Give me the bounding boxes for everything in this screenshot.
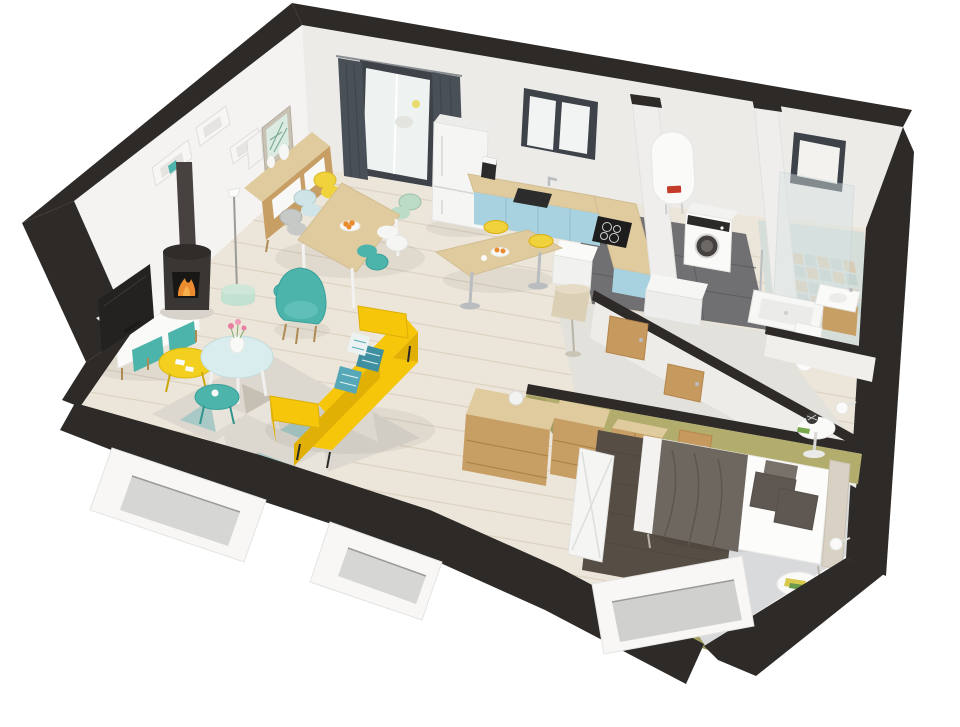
mug-2 xyxy=(212,390,219,397)
door-laundry xyxy=(606,316,648,360)
floor-plan-svg xyxy=(0,0,960,727)
armchair-shadow xyxy=(274,321,330,339)
bar-stool-1 xyxy=(484,221,508,234)
vase-2 xyxy=(267,156,275,168)
kettle xyxy=(481,156,497,180)
washing-machine xyxy=(684,203,738,272)
pillow-2 xyxy=(774,488,818,530)
balcony-chair-hint xyxy=(412,100,420,108)
shower-glass-panel xyxy=(774,172,854,308)
sphere-decor xyxy=(509,391,523,405)
console-desk xyxy=(462,388,560,486)
mug xyxy=(481,255,487,261)
floor-plan-render xyxy=(0,0,960,727)
bar-fruit-bowl xyxy=(491,248,509,257)
balcony-hint xyxy=(395,116,413,128)
bar-stool-2 xyxy=(529,235,553,248)
vase-1 xyxy=(279,144,289,160)
